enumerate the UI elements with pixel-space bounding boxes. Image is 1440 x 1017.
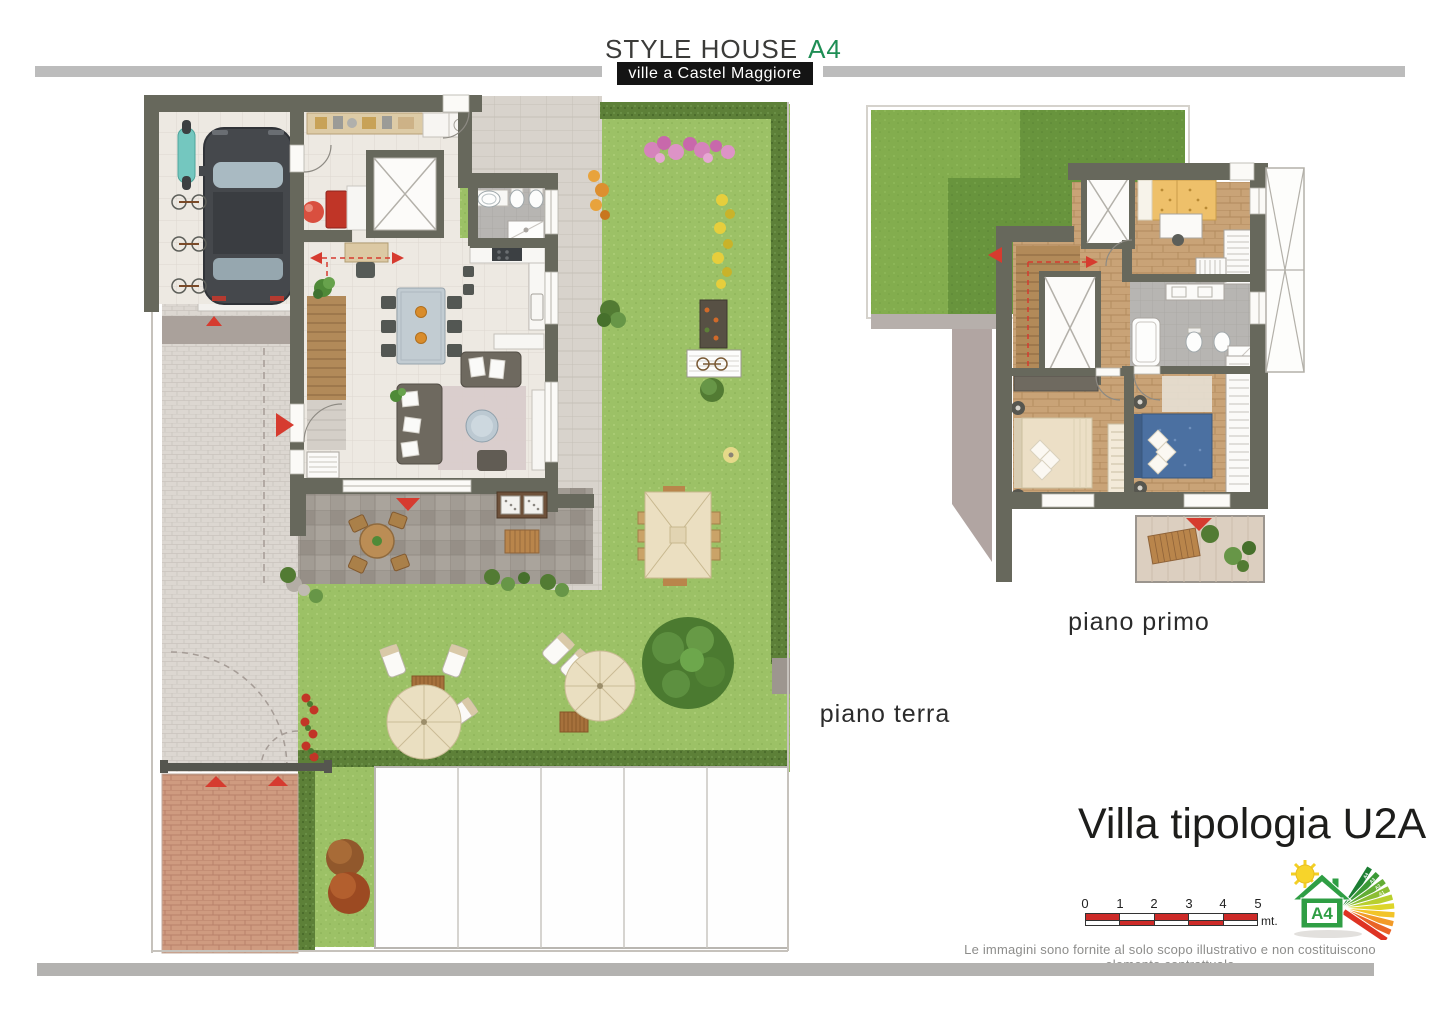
car [199,128,297,304]
parasol-west [387,685,461,759]
villa-type-title: Villa tipologia U2A [1078,800,1426,849]
hedge-right [771,102,788,664]
balcony [1136,516,1264,582]
scale-tick: 4 [1215,896,1231,911]
scale-tick: 1 [1112,896,1128,911]
garden-gazebo [638,486,720,586]
sofa-horizontal [461,352,521,387]
bedroom-rug [1162,376,1212,412]
energy-bars: A4 A3 A2 A1 [1340,866,1396,940]
ground-floor-plan [140,90,800,960]
scale-unit: mt. [1261,914,1278,928]
wall-console [532,390,545,470]
garden-planter [700,300,727,348]
toilet [1186,332,1202,352]
patio-bench [505,530,539,553]
page-title: STYLE HOUSEA4 [605,34,825,65]
wardrobe-right [1226,356,1252,496]
motorcycle [178,120,195,190]
first-floor-label: piano primo [1068,608,1210,637]
project-subtitle: ville a Castel Maggiore [617,62,813,85]
neighbor-stair-shaft [1266,168,1304,372]
scale-tick: 2 [1146,896,1162,911]
header-rule-left [35,66,602,77]
brand-name: STYLE HOUSE [605,34,798,64]
scale-tick: 5 [1250,896,1266,911]
hedge-left-lower [298,750,315,950]
garden-bench-bike [687,350,741,377]
wardrobe-dark [1014,376,1098,391]
hedge-top [600,102,788,119]
first-floor-plan [860,95,1320,640]
ground-floor-label: piano terra [820,700,951,729]
elevator-shaft [366,150,444,238]
scale-bar: 0 1 2 3 4 5 mt. [1085,896,1259,932]
workbench [307,113,423,134]
barbecue [497,492,547,518]
parasol-east [565,651,635,721]
pouf [477,450,507,471]
energy-class-label: A4 [1311,904,1333,923]
roof-slope [952,329,992,562]
header-rule-right [823,66,1405,77]
hedge-bottom [298,750,788,767]
dining-set [381,288,462,364]
tv-cabinet [494,334,544,349]
energy-class-logo: A4 A3 A2 A1 A4 [1283,858,1401,940]
scale-bar-segments [1085,913,1258,926]
brick-court [162,774,298,953]
parking-area [375,767,788,948]
logo-shadow [1294,930,1362,938]
scale-tick: 3 [1181,896,1197,911]
garden-lamp [723,447,739,463]
upper-elevator [1084,174,1132,246]
brochure-page: STYLE HOUSEA4 ville a Castel Maggiore [0,0,1440,1017]
footer-rule [37,963,1374,976]
vanity [1166,284,1224,300]
entrance-gate [163,763,331,771]
sofa-vertical [397,384,442,464]
garden-tree [642,617,734,709]
brand-model: A4 [808,34,842,64]
desk [1160,214,1202,238]
scale-tick: 0 [1077,896,1093,911]
